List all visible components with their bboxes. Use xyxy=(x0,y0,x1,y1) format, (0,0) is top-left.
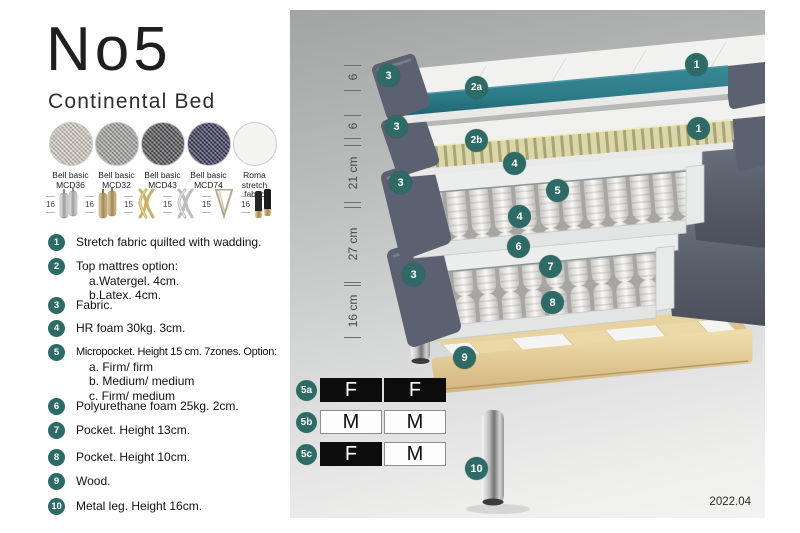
firmness-cell: M xyxy=(384,410,446,434)
feature-badge: 9 xyxy=(48,473,65,490)
diagram-badge-5: 5 xyxy=(546,179,569,202)
diagram-badge-9: 9 xyxy=(453,346,476,369)
feature-badge: 3 xyxy=(48,297,65,314)
fabric-swatch-circle xyxy=(95,122,139,166)
diagram-badge-1b: 1 xyxy=(687,117,710,140)
dim-label-16cm: 16 cm xyxy=(346,286,362,336)
dim-label-topper-a: 6 xyxy=(346,52,362,102)
feature-badge: 7 xyxy=(48,422,65,439)
dim-label-21cm: 21 cm xyxy=(346,148,362,198)
diagram-badge-6: 6 xyxy=(507,235,530,258)
diagram-badge-3: 3 xyxy=(377,64,400,87)
feature-item-7: 7 Pocket. Height 13cm. xyxy=(48,423,303,439)
leg-option: 16 xyxy=(46,186,85,222)
page-title: No5 xyxy=(46,14,172,85)
feature-badge: 5 xyxy=(48,344,65,361)
dim-label-27cm: 27 cm xyxy=(346,219,362,269)
diagram-badge-1: 1 xyxy=(685,53,708,76)
feature-badge: 6 xyxy=(48,398,65,415)
leg-option: 15 xyxy=(202,186,241,222)
feature-badge: 1 xyxy=(48,234,65,251)
firmness-cell: F xyxy=(384,378,446,402)
dim-tick xyxy=(344,202,361,203)
feature-item-3: 3 Fabric. xyxy=(48,298,303,314)
feature-item-10: 10 Metal leg. Height 16cm. xyxy=(48,499,303,515)
diagram-badge-4: 4 xyxy=(503,152,526,175)
product-sheet: No5 Continental Bed Bell basicMCD36 Bell… xyxy=(0,0,800,533)
feature-item-4: 4 HR foam 30kg. 3cm. xyxy=(48,321,303,337)
firmness-row-5b: 5b M M xyxy=(296,410,448,434)
leg-option: 15 xyxy=(124,186,163,222)
feature-item-6: 6 Polyurethane foam 25kg. 2cm. xyxy=(48,399,303,415)
firmness-row-badge: 5b xyxy=(296,412,317,433)
leg-option: 16 xyxy=(85,186,124,222)
diagram-panel: 6 6 21 cm 27 cm 16 cm 1 2a 3 1 2b 3 4 3 … xyxy=(290,10,765,518)
leg-options: 16 16 15 15 xyxy=(46,186,280,222)
feature-item-9: 9 Wood. xyxy=(48,474,303,490)
firmness-row-5c: 5c F M xyxy=(296,442,448,466)
diagram-badge-2b: 2b xyxy=(465,129,488,152)
firmness-row-5a: 5a F F xyxy=(296,378,448,402)
feature-badge: 2 xyxy=(48,258,65,275)
black-gold-leg-icon xyxy=(251,186,276,222)
firmness-row-badge: 5c xyxy=(296,444,317,465)
feature-badge: 8 xyxy=(48,449,65,466)
firmness-row-badge: 5a xyxy=(296,380,317,401)
firmness-cell: F xyxy=(320,378,382,402)
fabric-swatch-circle xyxy=(233,122,277,166)
page-subtitle: Continental Bed xyxy=(48,90,215,114)
dim-label-topper-b: 6 xyxy=(346,101,362,151)
dim-tick xyxy=(344,337,361,338)
diagram-badge-2a: 2a xyxy=(465,76,488,99)
diagram-badge-8: 8 xyxy=(541,291,564,314)
diagram-badge-7: 7 xyxy=(539,255,562,278)
feature-item-2: 2 Top mattres option: a.Watergel. 4cm. b… xyxy=(48,259,303,303)
twisted-silver-leg-icon xyxy=(173,186,198,222)
fabric-swatch-circle xyxy=(141,122,185,166)
diagram-badge-3b: 3 xyxy=(385,115,408,138)
feature-badge: 10 xyxy=(48,498,65,515)
feature-item-1: 1 Stretch fabric quilted with wadding. xyxy=(48,235,303,251)
diagram-badge-3c: 3 xyxy=(389,171,412,194)
version-date: 2022.04 xyxy=(709,496,751,508)
cylinder-silver-leg-icon xyxy=(56,186,81,222)
leg-option: 16 xyxy=(241,186,280,222)
cylinder-gold-leg-icon xyxy=(95,186,120,222)
leg-option: 15 xyxy=(163,186,202,222)
diagram-badge-3d: 3 xyxy=(402,263,425,286)
feature-badge: 4 xyxy=(48,320,65,337)
twisted-gold-leg-icon xyxy=(134,186,159,222)
dim-tick xyxy=(344,207,361,208)
diagram-badge-10: 10 xyxy=(465,457,488,480)
fabric-swatch-circle xyxy=(187,122,231,166)
firmness-cell: M xyxy=(384,442,446,466)
dim-tick xyxy=(344,282,361,283)
feature-item-8: 8 Pocket. Height 10cm. xyxy=(48,450,303,466)
fabric-swatch-circle xyxy=(49,122,93,166)
diagram-badge-4b: 4 xyxy=(508,205,531,228)
hairpin-leg-icon xyxy=(212,186,237,222)
feature-item-5: 5 Micropocket. Height 15 cm. 7zones. Opt… xyxy=(48,345,303,403)
firmness-cell: F xyxy=(320,442,382,466)
firmness-cell: M xyxy=(320,410,382,434)
